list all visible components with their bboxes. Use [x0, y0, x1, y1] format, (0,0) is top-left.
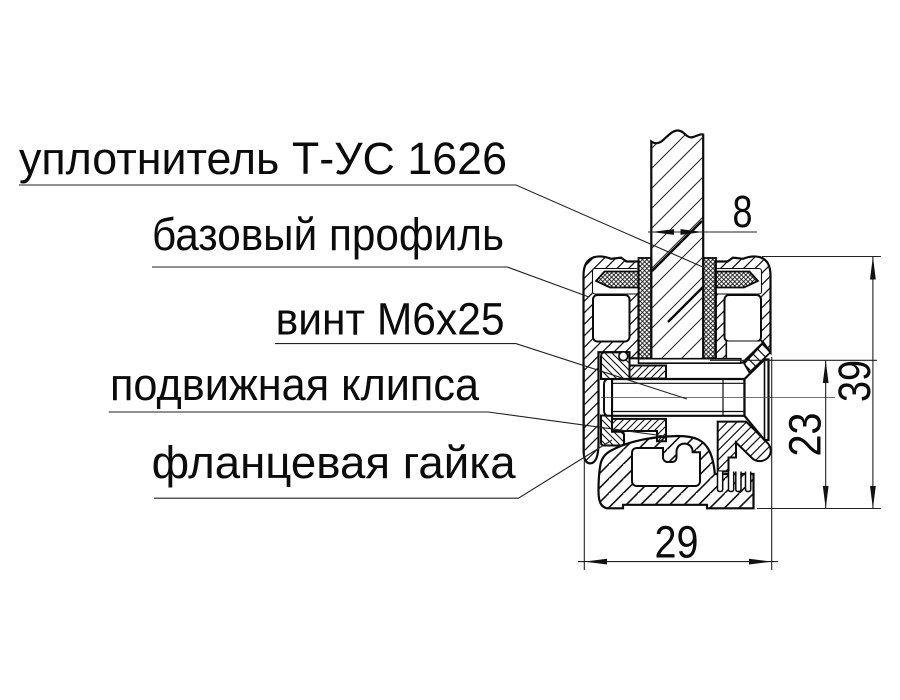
svg-text:подвижная клипса: подвижная клипса — [110, 359, 480, 410]
svg-text:базовый профиль: базовый профиль — [152, 209, 504, 260]
svg-text:уплотнитель Т-УС 1626: уплотнитель Т-УС 1626 — [19, 133, 507, 184]
svg-text:винт М6х25: винт М6х25 — [276, 293, 505, 344]
svg-text:39: 39 — [829, 360, 880, 402]
svg-text:8: 8 — [733, 186, 753, 237]
svg-text:29: 29 — [655, 517, 699, 568]
svg-text:фланцевая гайка: фланцевая гайка — [152, 437, 517, 488]
svg-text:23: 23 — [780, 413, 831, 457]
